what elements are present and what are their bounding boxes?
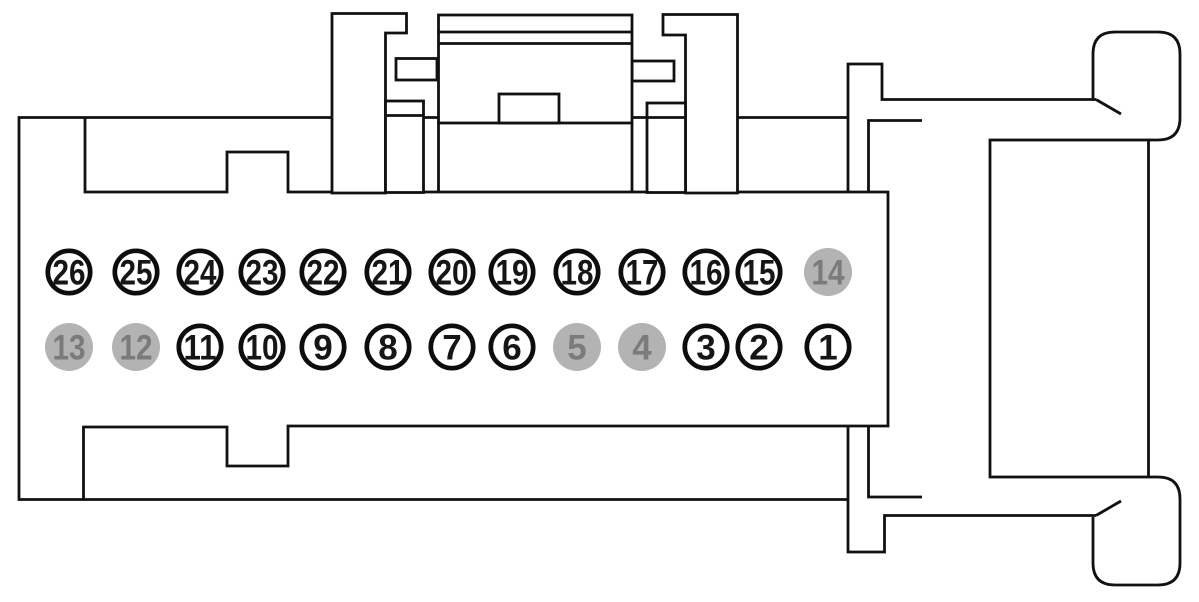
- svg-text:15: 15: [743, 254, 776, 293]
- mating-end-bottom: [1093, 477, 1180, 585]
- pin-19: 19: [491, 251, 533, 293]
- mating-end-top: [1093, 32, 1180, 140]
- center-lock-block: [439, 15, 633, 192]
- svg-text:24: 24: [184, 254, 217, 293]
- pin-13: 13: [45, 323, 93, 371]
- svg-text:17: 17: [626, 254, 659, 293]
- pin-21: 21: [367, 251, 409, 293]
- pin-24: 24: [179, 251, 221, 293]
- pin-22: 22: [302, 251, 344, 293]
- svg-text:14: 14: [812, 254, 845, 293]
- svg-text:13: 13: [53, 329, 86, 368]
- lock-tower-left: [332, 14, 437, 194]
- svg-text:1: 1: [818, 329, 837, 368]
- pin-7: 7: [431, 326, 473, 368]
- latch-arm-bottom: [848, 426, 1121, 552]
- tower-left-tab: [396, 59, 437, 81]
- mating-end: [990, 32, 1180, 585]
- svg-text:23: 23: [246, 254, 279, 293]
- connector-diagram-canvas: 2625242322212019181716151413121110987654…: [0, 0, 1199, 602]
- pin-26: 26: [48, 251, 90, 293]
- svg-text:18: 18: [561, 254, 594, 293]
- pin-9: 9: [302, 326, 344, 368]
- latch-arm-top: [848, 64, 1121, 193]
- svg-text:6: 6: [502, 329, 521, 368]
- pin-17: 17: [621, 251, 663, 293]
- svg-text:5: 5: [567, 329, 586, 368]
- svg-text:20: 20: [436, 254, 469, 293]
- center-lock-key: [499, 94, 559, 123]
- pin-1: 1: [807, 326, 849, 368]
- pin-23: 23: [241, 251, 283, 293]
- svg-text:22: 22: [307, 254, 340, 293]
- pin-11: 11: [179, 326, 221, 368]
- latch-hook-bottom: [1096, 501, 1121, 516]
- svg-text:12: 12: [120, 329, 153, 368]
- svg-text:25: 25: [120, 254, 153, 293]
- pin-4: 4: [618, 323, 666, 371]
- svg-text:9: 9: [313, 329, 332, 368]
- svg-text:10: 10: [246, 329, 279, 368]
- pin-2: 2: [738, 326, 780, 368]
- svg-text:21: 21: [372, 254, 405, 293]
- svg-text:26: 26: [53, 254, 86, 293]
- svg-text:4: 4: [632, 329, 652, 368]
- svg-text:8: 8: [378, 329, 397, 368]
- pin-14: 14: [804, 248, 852, 296]
- pin-8: 8: [367, 326, 409, 368]
- mating-end-cavity: [990, 140, 1149, 477]
- pin-18: 18: [556, 251, 598, 293]
- pin-25: 25: [115, 251, 157, 293]
- latch-hook-top: [1096, 100, 1121, 115]
- pin-12: 12: [112, 323, 160, 371]
- connector-body-outline: [19, 118, 888, 500]
- svg-text:3: 3: [696, 329, 715, 368]
- svg-text:7: 7: [442, 329, 461, 368]
- pin-6: 6: [491, 326, 533, 368]
- svg-text:16: 16: [690, 254, 723, 293]
- pin-5: 5: [553, 323, 601, 371]
- pin-15: 15: [738, 251, 780, 293]
- svg-text:11: 11: [184, 329, 217, 368]
- pin-grid: 2625242322212019181716151413121110987654…: [45, 248, 852, 371]
- pin-16: 16: [685, 251, 727, 293]
- svg-text:19: 19: [496, 254, 529, 293]
- connector-diagram: 2625242322212019181716151413121110987654…: [0, 0, 1199, 602]
- pin-20: 20: [431, 251, 473, 293]
- lock-tower-right: [632, 15, 738, 194]
- pin-housing-face: [84, 118, 889, 500]
- pin-3: 3: [685, 326, 727, 368]
- tower-right-tab: [632, 61, 674, 81]
- pin-10: 10: [241, 326, 283, 368]
- svg-text:2: 2: [749, 329, 768, 368]
